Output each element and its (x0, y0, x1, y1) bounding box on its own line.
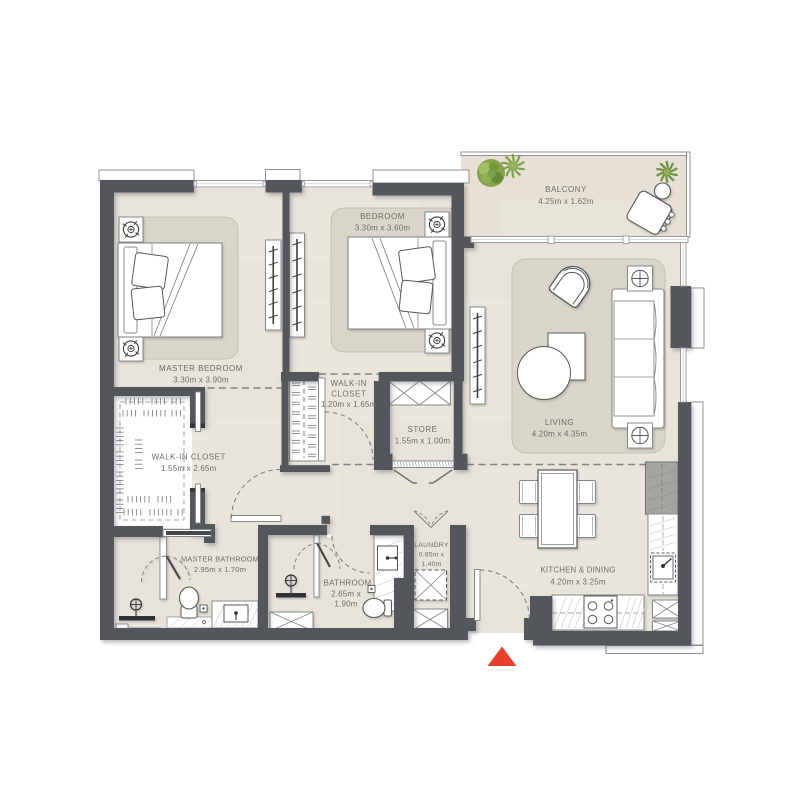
svg-text:3.30m x 3.60m: 3.30m x 3.60m (355, 224, 411, 233)
svg-text:4.20m x 4.35m: 4.20m x 4.35m (532, 430, 588, 439)
svg-text:0.85m x: 0.85m x (419, 552, 445, 559)
svg-text:3.30m x 3.90m: 3.30m x 3.90m (173, 376, 229, 385)
svg-text:2.65m x: 2.65m x (331, 590, 361, 599)
svg-text:BATHROOM: BATHROOM (323, 579, 371, 588)
svg-text:BEDROOM: BEDROOM (360, 212, 405, 221)
svg-text:STORE: STORE (408, 425, 438, 434)
svg-text:LIVING: LIVING (545, 418, 574, 427)
svg-text:MASTER BATHROOM: MASTER BATHROOM (181, 555, 259, 564)
svg-text:1.55m x 1.00m: 1.55m x 1.00m (395, 437, 451, 446)
svg-text:WALK-IN: WALK-IN (330, 379, 367, 388)
svg-text:MASTER BEDROOM: MASTER BEDROOM (159, 364, 243, 373)
svg-text:WALK-IN CLOSET: WALK-IN CLOSET (152, 453, 226, 462)
svg-text:CLOSET: CLOSET (331, 390, 366, 399)
svg-text:KITCHEN & DINING: KITCHEN & DINING (540, 566, 615, 575)
svg-text:2.95m x 1.70m: 2.95m x 1.70m (194, 565, 246, 574)
svg-text:4.20m x 3.25m: 4.20m x 3.25m (550, 578, 606, 587)
svg-text:1.40m: 1.40m (422, 561, 442, 568)
svg-text:1.20m x 1.65m: 1.20m x 1.65m (321, 400, 377, 409)
svg-text:1.90m: 1.90m (334, 600, 357, 609)
svg-text:BALCONY: BALCONY (545, 185, 587, 194)
svg-text:4.25m x 1.62m: 4.25m x 1.62m (538, 197, 594, 206)
svg-text:LAUNDRY: LAUNDRY (414, 542, 449, 549)
svg-text:1.55m x 2.65m: 1.55m x 2.65m (161, 464, 217, 473)
